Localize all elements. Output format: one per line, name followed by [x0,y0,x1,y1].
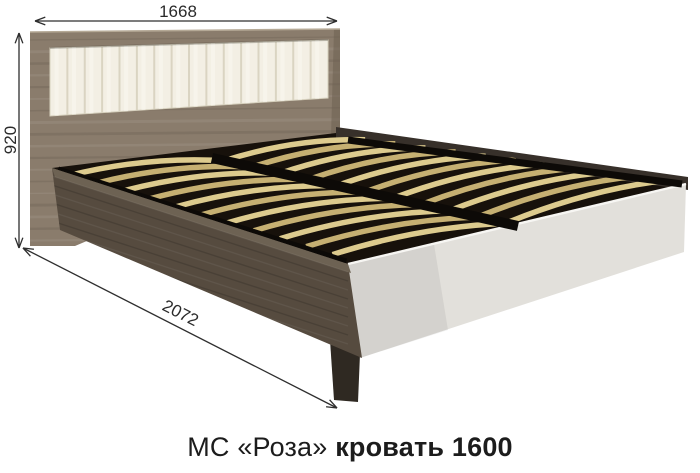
product-model-name: кровать 1600 [335,432,513,462]
product-series-name: МС «Роза» [187,432,327,462]
width-dimension-label: 1668 [159,2,197,21]
bed-isometric-drawing: 1668 920 2072 [0,0,700,473]
product-caption: МС «Роза» кровать 1600 [0,432,700,463]
product-dimension-diagram: 1668 920 2072 МС «Роза» кровать 1600 [0,0,700,473]
length-dimension-label: 2072 [159,296,201,330]
height-dimension-label: 920 [1,126,20,154]
